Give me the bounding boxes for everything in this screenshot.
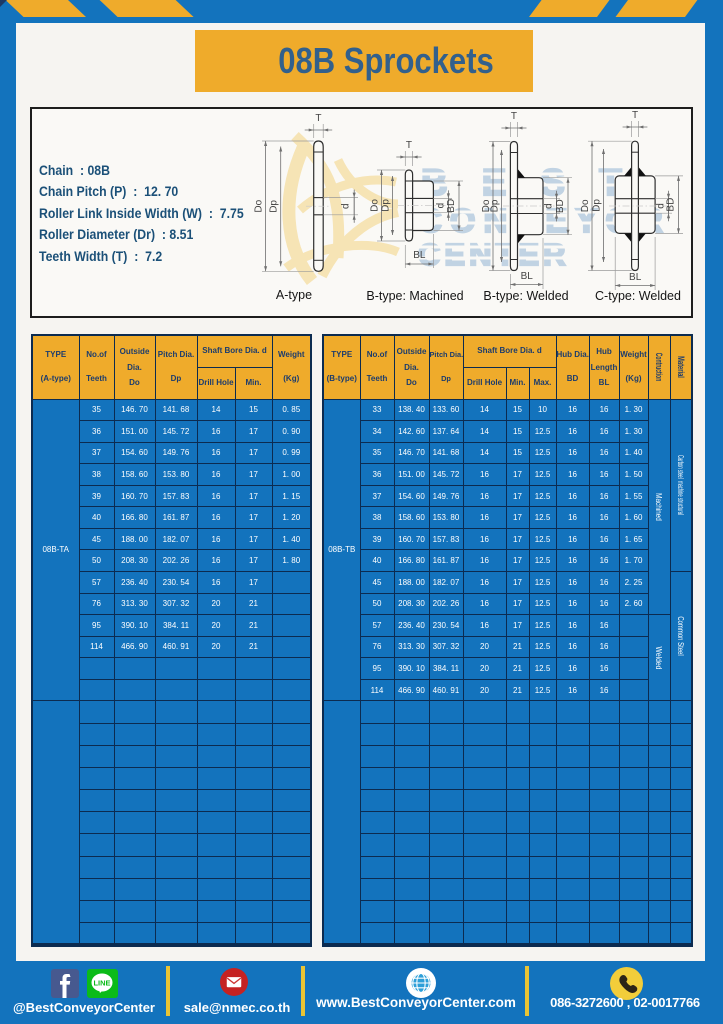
svg-text:LINE: LINE [93,979,110,988]
